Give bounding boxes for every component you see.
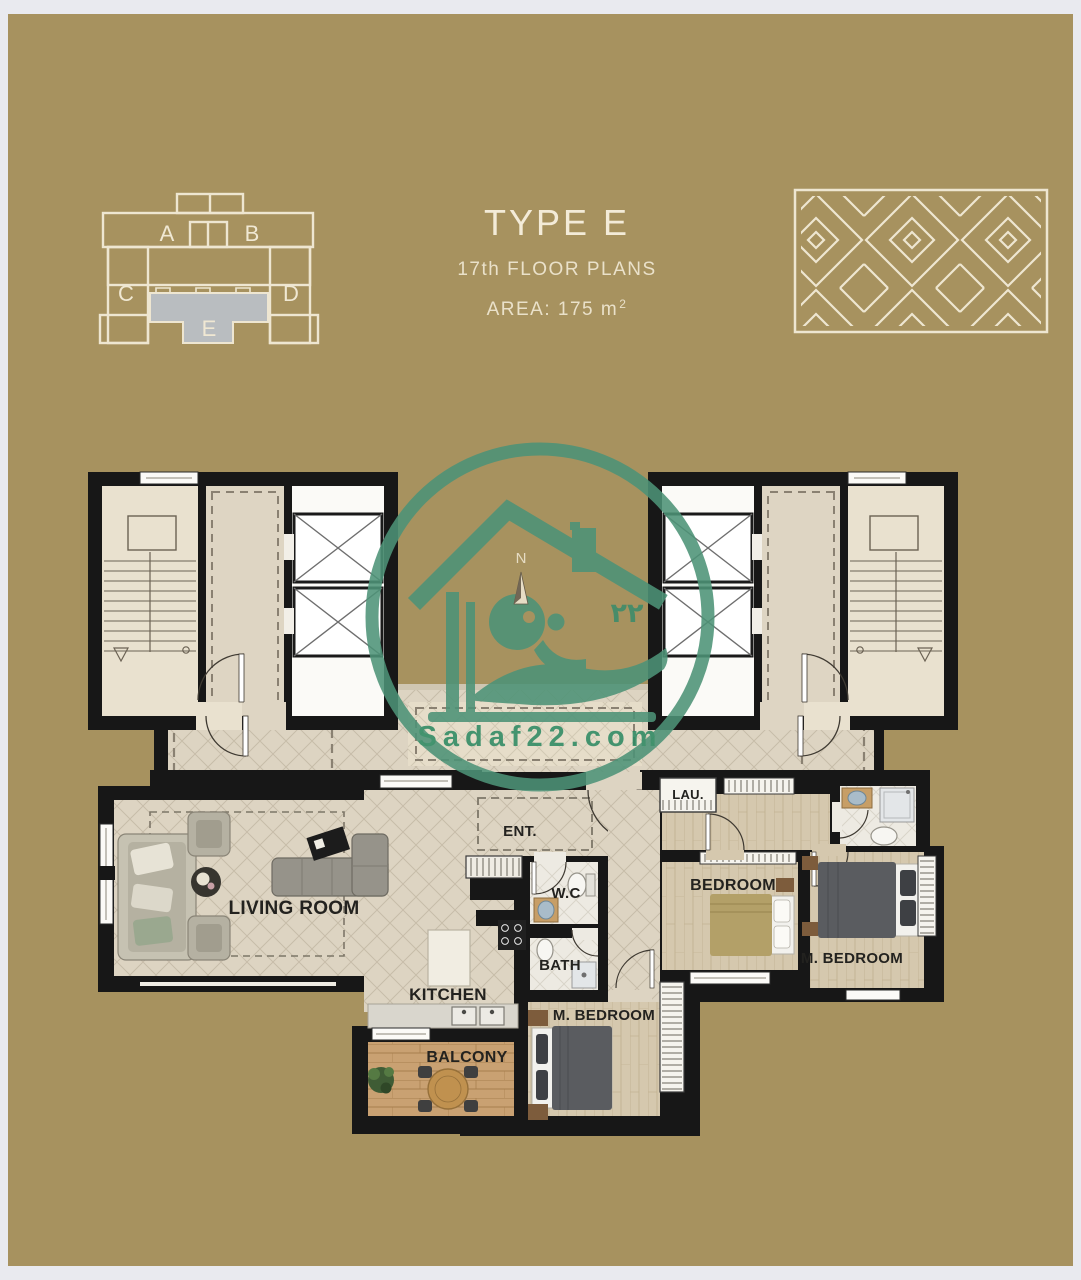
room-label-bedroom: BEDROOM bbox=[690, 877, 776, 894]
plan-area-text: AREA: 175 m2 bbox=[487, 297, 628, 320]
bed-master-right bbox=[802, 856, 924, 938]
deco-pattern-panel bbox=[795, 190, 1047, 332]
kitchen-sink bbox=[452, 1007, 476, 1025]
room-label-kitchen: KITCHEN bbox=[409, 985, 487, 1004]
master-bedroom-right: M. BEDROOM bbox=[801, 844, 936, 1000]
north-label: N bbox=[516, 550, 527, 567]
kitchen-island bbox=[428, 930, 470, 986]
right-core bbox=[648, 472, 958, 756]
plan-floor-subtitle: 17th FLOOR PLANS bbox=[457, 259, 656, 280]
plan-type-title: TYPE E bbox=[484, 202, 630, 243]
room-label-master-bedroom-right: M. BEDROOM bbox=[801, 950, 903, 967]
laundry-closet: LAU. bbox=[660, 778, 716, 812]
wc: W.C bbox=[530, 852, 598, 924]
room-label-entrance: ENT. bbox=[503, 823, 537, 840]
watermark-arabic-22: ٢٢ bbox=[611, 598, 644, 629]
bathroom-top-right bbox=[832, 786, 916, 846]
room-label-master-bedroom-lower: M. BEDROOM bbox=[553, 1007, 655, 1024]
room-label-laundry: LAU. bbox=[672, 787, 704, 802]
key-plan-label-e: E bbox=[202, 316, 217, 341]
right-wing: LAU. bbox=[660, 778, 936, 1000]
key-plan-label-b: B bbox=[245, 221, 260, 246]
room-label-wc: W.C bbox=[551, 885, 580, 902]
left-core bbox=[88, 472, 398, 756]
title-block: TYPE E 17th FLOOR PLANS AREA: 175 m2 bbox=[457, 202, 656, 320]
sofa-long bbox=[118, 834, 196, 960]
key-plan-label-d: D bbox=[283, 281, 299, 306]
room-label-balcony: BALCONY bbox=[426, 1049, 507, 1066]
vanity-sink bbox=[842, 788, 872, 808]
shower-top-right bbox=[880, 788, 914, 822]
key-plan-label-a: A bbox=[160, 221, 175, 246]
coffee-table bbox=[191, 867, 221, 897]
watermark-website: Sadaf22.com bbox=[418, 721, 663, 753]
stove bbox=[498, 920, 526, 950]
room-label-bath: BATH bbox=[539, 957, 581, 974]
room-label-living-room: LIVING ROOM bbox=[228, 898, 359, 919]
toilet-top-right bbox=[871, 827, 897, 845]
kitchen-sink-2 bbox=[480, 1007, 504, 1025]
floor-plan-sheet: A B C D E TYPE E 17th FLOOR PLANS AREA: … bbox=[0, 0, 1081, 1280]
key-plan-label-c: C bbox=[118, 281, 134, 306]
